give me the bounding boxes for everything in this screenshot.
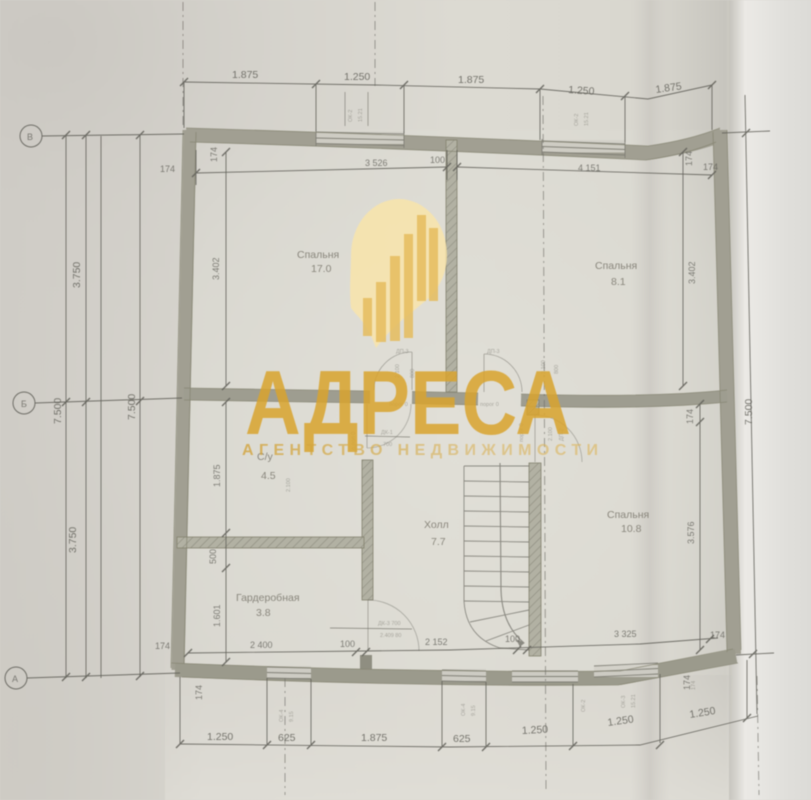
svg-text:АДРЕСА: АДРЕСА bbox=[245, 353, 571, 454]
svg-text:3 526: 3 526 bbox=[365, 158, 388, 168]
svg-text:15.21: 15.21 bbox=[584, 112, 590, 126]
svg-text:1.875: 1.875 bbox=[232, 69, 258, 81]
svg-text:1.250: 1.250 bbox=[522, 724, 549, 737]
svg-text:Спальня: Спальня bbox=[595, 260, 637, 272]
svg-text:1.250: 1.250 bbox=[207, 731, 233, 743]
svg-text:174: 174 bbox=[691, 681, 697, 690]
svg-text:7.500: 7.500 bbox=[743, 399, 755, 425]
svg-text:ОК-2: ОК-2 bbox=[348, 110, 354, 122]
svg-text:100: 100 bbox=[505, 634, 520, 644]
svg-text:10.8: 10.8 bbox=[621, 523, 642, 535]
svg-text:2 152: 2 152 bbox=[425, 637, 448, 647]
svg-text:7.500: 7.500 bbox=[52, 398, 64, 424]
svg-text:17.0: 17.0 bbox=[311, 263, 332, 275]
svg-text:174: 174 bbox=[703, 162, 718, 172]
svg-text:Спальня: Спальня bbox=[607, 509, 649, 521]
svg-text:3.402: 3.402 bbox=[687, 261, 697, 284]
svg-text:3.750: 3.750 bbox=[71, 262, 83, 288]
svg-text:4.5: 4.5 bbox=[261, 470, 276, 482]
svg-text:2 400: 2 400 bbox=[250, 640, 273, 650]
svg-text:174: 174 bbox=[684, 151, 694, 166]
svg-text:1.875: 1.875 bbox=[361, 732, 387, 744]
svg-text:174: 174 bbox=[685, 409, 695, 424]
svg-text:АГЕНТСТВО НЕДВИЖИМОСТИ: АГЕНТСТВО НЕДВИЖИМОСТИ bbox=[242, 442, 598, 459]
svg-text:ОК-3: ОК-3 bbox=[621, 696, 627, 708]
svg-text:Спальня: Спальня bbox=[297, 249, 339, 261]
svg-text:174: 174 bbox=[710, 630, 725, 640]
svg-text:Гардеробная: Гардеробная bbox=[236, 592, 300, 604]
svg-text:15.21: 15.21 bbox=[631, 694, 637, 708]
svg-text:Б: Б bbox=[21, 399, 27, 409]
svg-text:100: 100 bbox=[430, 155, 445, 165]
svg-text:1.875: 1.875 bbox=[458, 74, 484, 86]
svg-text:174: 174 bbox=[160, 164, 175, 174]
svg-text:ОК-4: ОК-4 bbox=[461, 704, 467, 716]
svg-text:ОК-4: ОК-4 bbox=[279, 710, 285, 722]
svg-text:3.750: 3.750 bbox=[67, 527, 79, 553]
svg-text:3.8: 3.8 bbox=[256, 607, 271, 619]
svg-text:7.500: 7.500 bbox=[126, 394, 138, 420]
svg-text:625: 625 bbox=[278, 732, 296, 744]
svg-text:174: 174 bbox=[194, 685, 204, 700]
svg-text:А: А bbox=[12, 674, 18, 684]
svg-text:ОК-2: ОК-2 bbox=[581, 700, 587, 712]
svg-text:1.875: 1.875 bbox=[212, 464, 222, 487]
svg-text:174: 174 bbox=[155, 641, 170, 651]
svg-text:3.402: 3.402 bbox=[211, 257, 221, 280]
svg-text:8.1: 8.1 bbox=[611, 276, 626, 288]
svg-text:500: 500 bbox=[208, 549, 218, 564]
svg-text:625: 625 bbox=[453, 733, 471, 745]
svg-text:100: 100 bbox=[340, 639, 355, 649]
svg-text:1.250: 1.250 bbox=[568, 84, 595, 98]
svg-text:15.21: 15.21 bbox=[358, 108, 364, 122]
svg-text:9.15: 9.15 bbox=[289, 711, 295, 722]
svg-text:3.576: 3.576 bbox=[686, 521, 696, 544]
svg-text:2.100: 2.100 bbox=[286, 478, 292, 492]
svg-text:7.7: 7.7 bbox=[431, 536, 446, 548]
svg-text:ДК-3 700: ДК-3 700 bbox=[378, 621, 401, 627]
svg-text:9.15: 9.15 bbox=[471, 705, 477, 716]
svg-text:3 325: 3 325 bbox=[614, 629, 637, 639]
svg-text:174: 174 bbox=[209, 147, 219, 162]
svg-text:ОК-2: ОК-2 bbox=[574, 114, 580, 126]
svg-text:1.250: 1.250 bbox=[344, 71, 370, 83]
svg-text:4 151: 4 151 bbox=[578, 163, 601, 173]
svg-text:В: В bbox=[27, 132, 33, 142]
svg-text:2.409 80: 2.409 80 bbox=[380, 633, 401, 639]
svg-text:Холл: Холл bbox=[424, 519, 449, 531]
svg-text:1.601: 1.601 bbox=[212, 604, 222, 627]
